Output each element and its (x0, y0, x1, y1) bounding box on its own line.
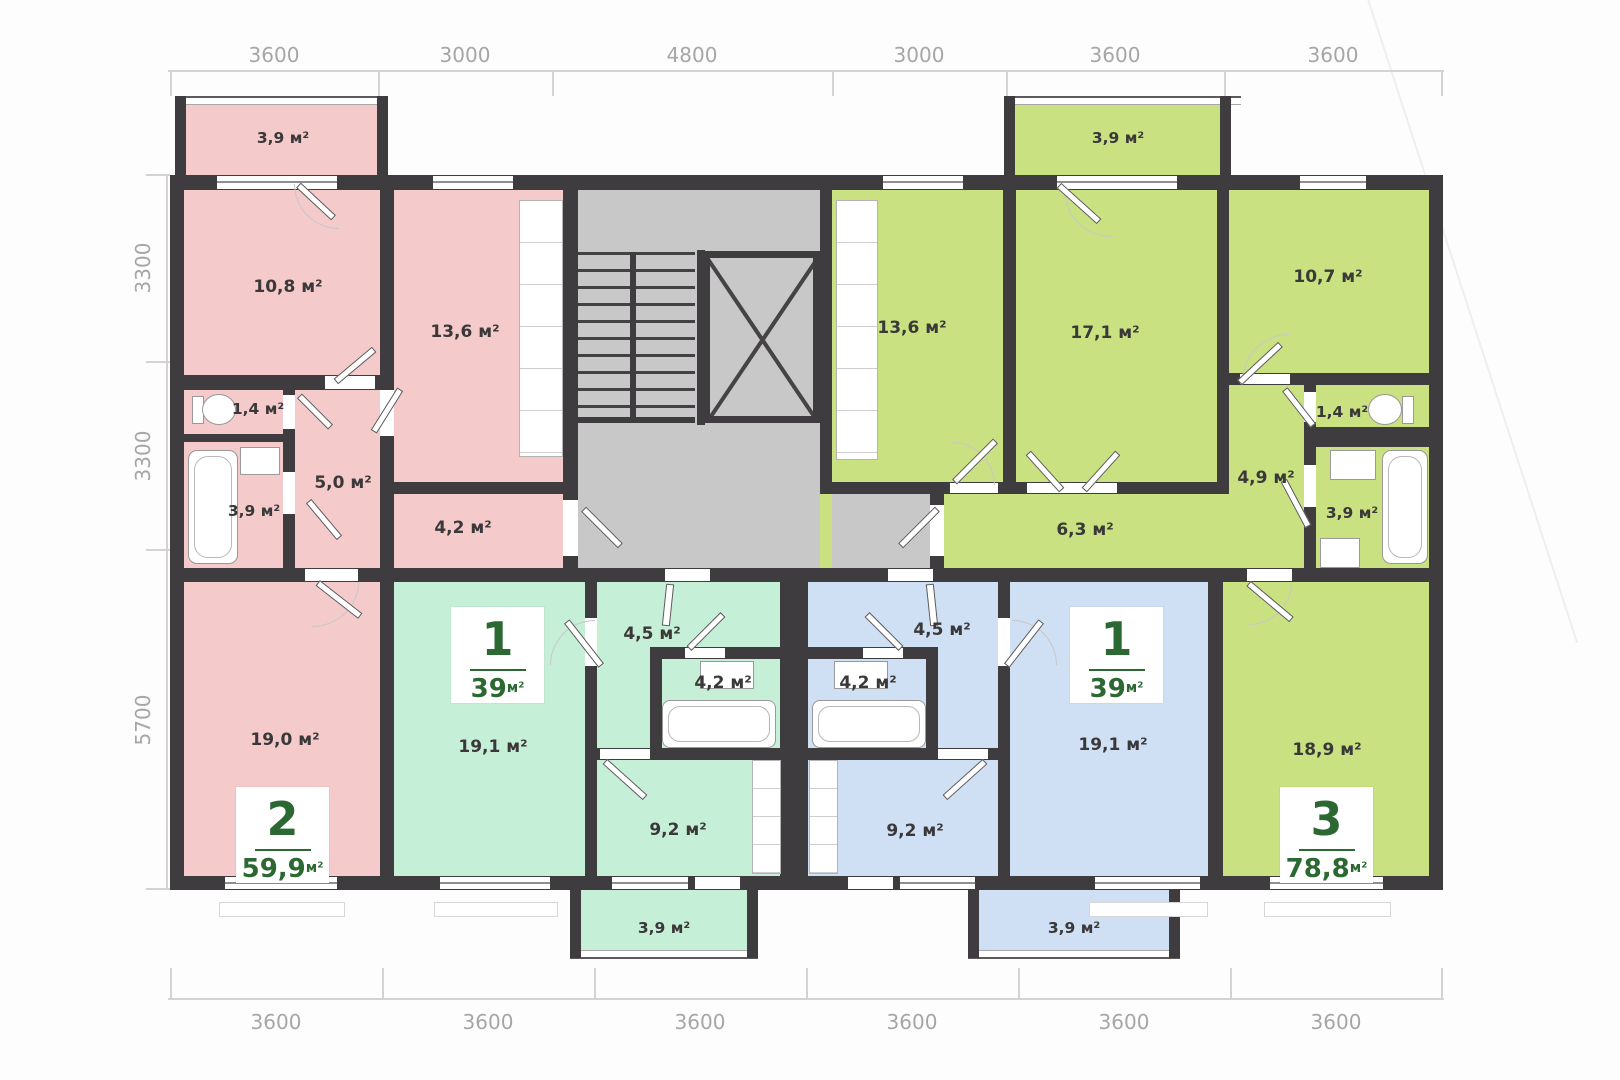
wall (1004, 96, 1015, 175)
label-green-living: 17,1 м² (1070, 323, 1139, 343)
toilet (1402, 396, 1414, 424)
label-green-corridor: 6,3 м² (1056, 520, 1113, 540)
label-mint-balcony: 3,9 м² (638, 919, 690, 937)
door-opening (695, 877, 740, 889)
label-mint-bath: 4,2 м² (694, 673, 751, 693)
apartment-badge-1-mint: 1 39м² (451, 607, 544, 703)
label-pink-living: 19,0 м² (250, 730, 319, 750)
bathtub-inner (818, 706, 920, 742)
dim-label: 3300 (131, 243, 155, 294)
window (883, 176, 963, 189)
door-opening (305, 569, 358, 581)
kitchen-counter (836, 200, 878, 460)
dim-tick (1006, 70, 1008, 96)
dim-label: 3600 (251, 1010, 302, 1034)
dim-label: 3600 (1090, 43, 1141, 67)
dim-line-bottom (168, 998, 1444, 1000)
label-mint-hall: 4,5 м² (623, 624, 680, 644)
label-green-bedroom2: 18,9 м² (1292, 740, 1361, 760)
wall (1304, 427, 1443, 447)
window (1057, 176, 1177, 189)
floor-plan: 3600 3000 4800 3000 3600 3600 3300 3300 … (0, 0, 1620, 1080)
label-blue-living: 19,1 м² (1078, 735, 1147, 755)
label-green-kitchen: 13,6 м² (877, 318, 946, 338)
wall (747, 890, 758, 958)
balcony-rail (968, 950, 1180, 959)
label-green-wc: 1,4 м² (1316, 403, 1368, 421)
washing-machine (1320, 538, 1360, 568)
dim-tick (594, 968, 596, 998)
dim-tick (378, 70, 380, 96)
door-opening (1247, 569, 1292, 581)
wall (377, 96, 388, 175)
bathtub (1382, 450, 1428, 564)
dim-tick (1441, 70, 1443, 96)
label-mint-kitchen: 9,2 м² (649, 820, 706, 840)
badge-number: 1 (1070, 616, 1163, 662)
dim-tick (552, 70, 554, 96)
dim-label: 5700 (131, 695, 155, 746)
window-sill (1089, 902, 1208, 917)
label-blue-bath: 4,2 м² (839, 673, 896, 693)
label-blue-kitchen: 9,2 м² (886, 821, 943, 841)
door-opening (938, 749, 988, 759)
wall (1208, 568, 1223, 890)
label-blue-hall: 4,5 м² (913, 620, 970, 640)
stair-stringer (630, 252, 636, 418)
wall (178, 434, 295, 442)
dim-tick (806, 968, 808, 998)
apartment-badge-1-blue: 1 39м² (1070, 607, 1163, 703)
dim-tick (832, 70, 834, 96)
window (440, 877, 550, 889)
wall (820, 190, 832, 494)
badge-divider (1089, 669, 1145, 671)
balcony-rail (175, 96, 388, 105)
wall (1217, 190, 1229, 494)
label-mint-living: 19,1 м² (458, 737, 527, 757)
dim-tick (170, 70, 172, 96)
window-sill (219, 902, 345, 917)
window-sill (1264, 902, 1391, 917)
dim-label: 3000 (440, 43, 491, 67)
label-green-bath: 3,9 м² (1326, 504, 1378, 522)
bathtub (812, 700, 926, 748)
dim-label: 3600 (1311, 1010, 1362, 1034)
wall (968, 890, 979, 958)
bathtub (662, 700, 776, 748)
dim-tick (1018, 968, 1020, 998)
bathtub-inner (1388, 456, 1422, 558)
bathtub-inner (668, 706, 770, 742)
kitchen-counter (519, 200, 563, 457)
wall (170, 175, 1443, 190)
label-pink-bath: 3,9 м² (228, 502, 280, 520)
wall (570, 890, 581, 958)
badge-number: 3 (1280, 796, 1373, 842)
label-pink-corridor: 4,2 м² (434, 518, 491, 538)
label-green-bedroom: 10,7 м² (1293, 267, 1362, 287)
door-opening (665, 569, 710, 581)
toilet (1368, 394, 1402, 425)
balcony-rail (1004, 96, 1241, 105)
door-opening (283, 395, 295, 429)
wall (650, 647, 662, 750)
dim-tick (1441, 968, 1443, 998)
window (433, 176, 513, 189)
sink (240, 447, 280, 475)
wall (1429, 175, 1443, 890)
stairs (578, 252, 630, 418)
badge-area: 39 (1090, 674, 1126, 704)
dim-label: 3600 (675, 1010, 726, 1034)
wall (175, 96, 186, 175)
dim-label: 3600 (463, 1010, 514, 1034)
dim-line-top (168, 70, 1444, 72)
badge-unit: м² (1126, 680, 1144, 696)
badge-number: 2 (236, 796, 329, 842)
dim-line-left (166, 174, 168, 890)
dim-label: 3600 (249, 43, 300, 67)
window (1095, 877, 1200, 889)
badge-area: 78,8 (1286, 854, 1350, 884)
door-opening (1027, 483, 1117, 493)
door-opening (283, 472, 295, 514)
door-opening (1304, 465, 1316, 507)
label-pink-kitchen: 13,6 м² (430, 322, 499, 342)
dim-tick (170, 968, 172, 998)
bathtub-inner (194, 456, 232, 558)
window (612, 877, 688, 889)
apartment-badge-2: 2 59,9м² (236, 787, 329, 883)
wall (380, 482, 563, 494)
label-blue-balcony: 3,9 м² (1048, 919, 1100, 937)
sink (1330, 450, 1376, 480)
label-green-balcony: 3,9 м² (1092, 129, 1144, 147)
badge-divider (470, 669, 526, 671)
label-green-hall: 4,9 м² (1237, 468, 1294, 488)
label-pink-hall: 5,0 м² (314, 473, 371, 493)
dim-label: 3000 (894, 43, 945, 67)
dim-tick (382, 968, 384, 998)
window (1300, 176, 1366, 189)
badge-area: 59,9 (242, 854, 306, 884)
dim-tick (146, 174, 170, 176)
cabinet (752, 760, 781, 874)
wall (1169, 890, 1180, 958)
badge-unit: м² (1350, 860, 1368, 876)
label-pink-balcony: 3,9 м² (257, 129, 309, 147)
wall (170, 175, 184, 890)
dim-tick (1224, 70, 1226, 96)
balcony-rail (570, 950, 758, 959)
dim-tick (146, 361, 170, 363)
dim-tick (146, 888, 170, 890)
badge-divider (1299, 849, 1355, 851)
dim-tick (1230, 968, 1232, 998)
dim-label: 3600 (1308, 43, 1359, 67)
wall (380, 190, 394, 890)
dim-label: 4800 (667, 43, 718, 67)
badge-area: 39 (471, 674, 507, 704)
wall (780, 568, 808, 890)
badge-divider (255, 849, 311, 851)
wall (585, 568, 597, 890)
door-opening (888, 569, 933, 581)
wall (926, 647, 938, 750)
door-opening (600, 749, 650, 759)
window-sill (434, 902, 558, 917)
door-opening (563, 500, 578, 556)
window (900, 877, 975, 889)
stairs (636, 252, 695, 418)
label-pink-wc: 1,4 м² (232, 400, 284, 418)
badge-unit: м² (507, 680, 525, 696)
label-pink-bedroom: 10,8 м² (253, 277, 322, 297)
dim-tick (146, 549, 170, 551)
cabinet (809, 760, 838, 874)
apartment-badge-3: 3 78,8м² (1280, 787, 1373, 883)
badge-unit: м² (306, 860, 324, 876)
wall (1003, 190, 1016, 482)
door-opening (848, 877, 893, 889)
wall (998, 568, 1010, 890)
dim-label: 3600 (1099, 1010, 1150, 1034)
wall (832, 482, 1217, 494)
badge-number: 1 (451, 616, 544, 662)
door-opening (325, 376, 375, 389)
dim-label: 3600 (887, 1010, 938, 1034)
dim-label: 3300 (131, 431, 155, 482)
elevator (703, 251, 820, 423)
wall (1220, 96, 1231, 175)
wall (578, 417, 695, 423)
